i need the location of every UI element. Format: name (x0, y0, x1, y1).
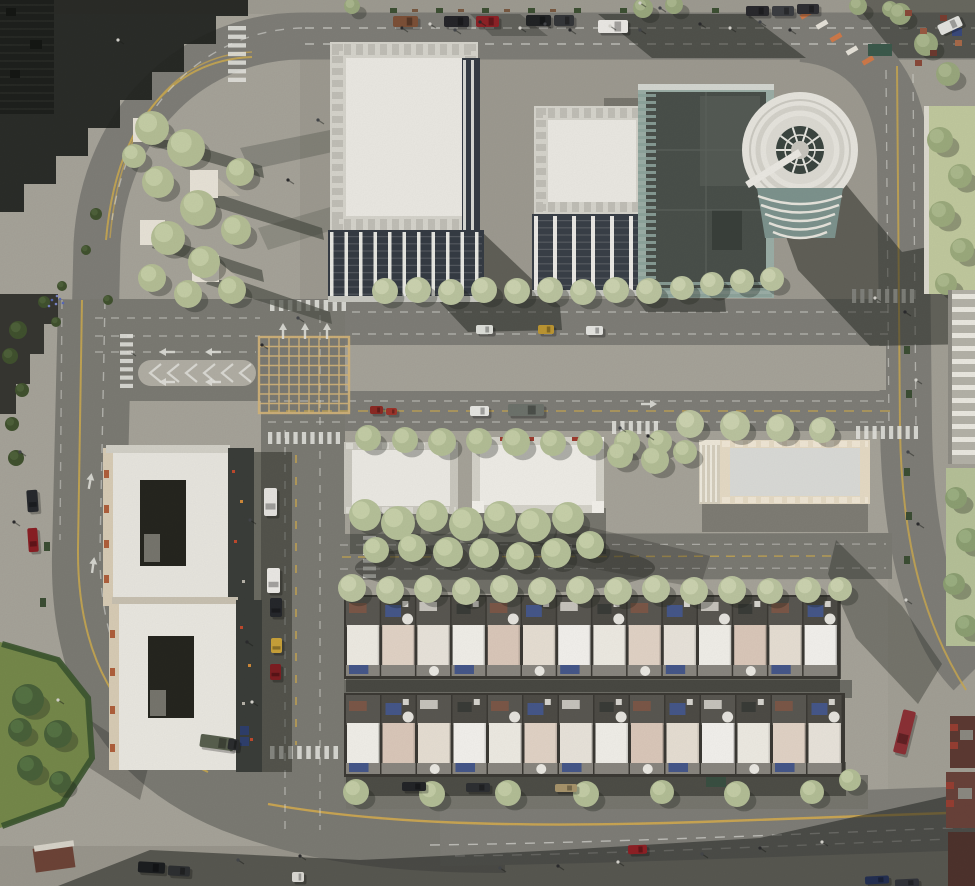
atmosphere (0, 0, 975, 886)
aerial-render-canvas (0, 0, 975, 886)
aerial-city-viewport[interactable] (0, 0, 975, 886)
